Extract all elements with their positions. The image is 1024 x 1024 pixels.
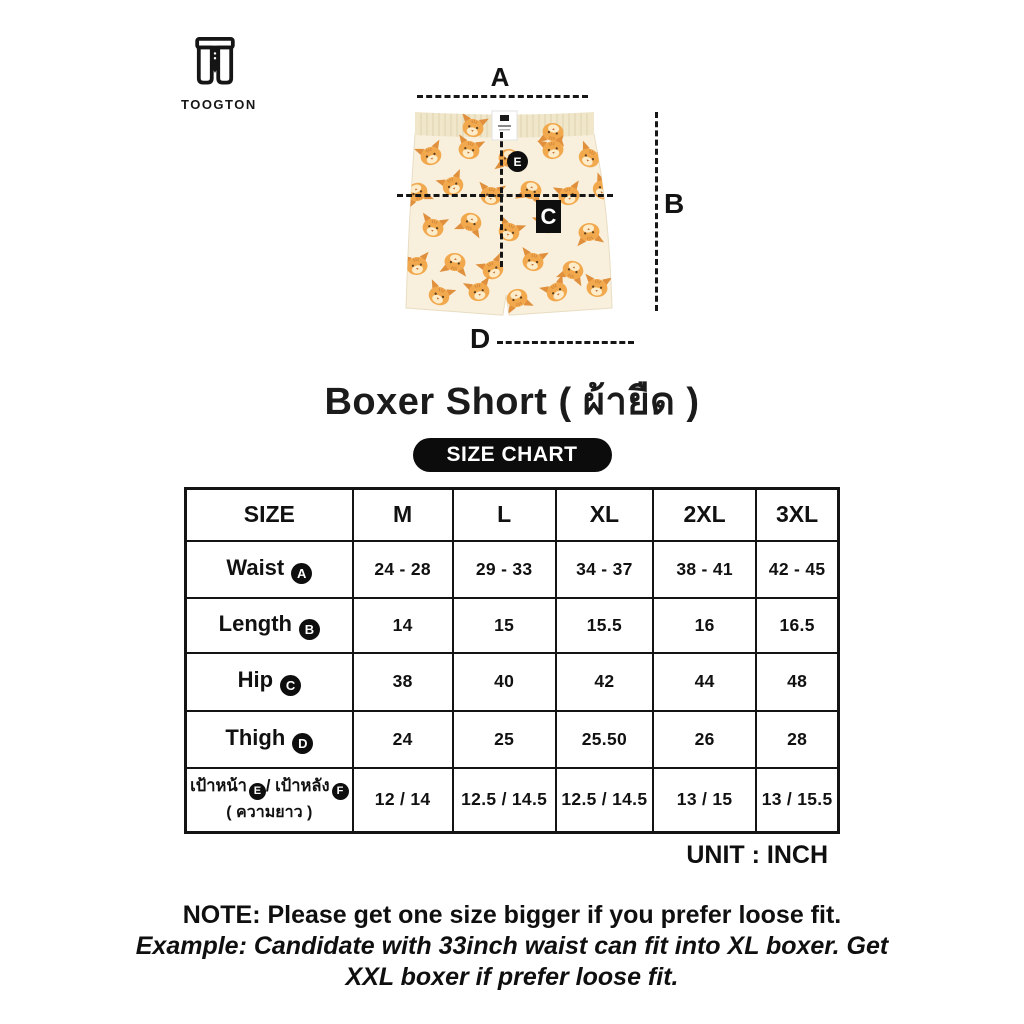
- table-row-thigh: ThighD 24 25 25.50 26 28: [186, 711, 839, 768]
- table-cell: 38 - 41: [653, 541, 756, 598]
- letter-badge-b: B: [299, 619, 320, 640]
- note-block: NOTE: Please get one size bigger if you …: [0, 900, 1024, 993]
- letter-badge-a: A: [291, 563, 312, 584]
- table-cell: 40: [453, 653, 556, 711]
- measure-line-A: [417, 95, 588, 98]
- measure-label-C: C: [536, 200, 561, 233]
- row-label-thigh: Thigh: [225, 725, 285, 750]
- measure-line-C: [397, 194, 613, 197]
- table-cell: 26: [653, 711, 756, 768]
- table-cell: 29 - 33: [453, 541, 556, 598]
- brand-logo: TOOGTON: [181, 34, 249, 112]
- table-cell: 42 - 45: [756, 541, 838, 598]
- row-label-back: เป้าหลัง: [275, 777, 329, 795]
- table-cell: 24: [353, 711, 453, 768]
- column-header-2xl: 2XL: [653, 489, 756, 541]
- table-cell: 34 - 37: [556, 541, 653, 598]
- table-row-crotch: เป้าหน้าE/ เป้าหลังF ( ความยาว ) 12 / 14…: [186, 768, 839, 833]
- table-cell: 28: [756, 711, 838, 768]
- table-row-hip: HipC 38 40 42 44 48: [186, 653, 839, 711]
- column-header-l: L: [453, 489, 556, 541]
- table-cell: 14: [353, 598, 453, 653]
- table-cell: 16: [653, 598, 756, 653]
- row-label-separator: /: [266, 777, 271, 795]
- table-cell: 44: [653, 653, 756, 711]
- measure-line-B: [655, 112, 658, 311]
- row-label-waist: Waist: [226, 555, 284, 580]
- measure-label-A: A: [484, 62, 516, 93]
- letter-badge-f: F: [332, 783, 349, 800]
- table-cell: 24 - 28: [353, 541, 453, 598]
- table-cell: 12.5 / 14.5: [453, 768, 556, 833]
- content-stack: Boxer Short ( ผ้ายืด ) SIZE CHART SIZE M…: [0, 379, 1024, 993]
- table-cell: 16.5: [756, 598, 838, 653]
- column-header-size: SIZE: [186, 489, 353, 541]
- table-cell: 25: [453, 711, 556, 768]
- table-header-row: SIZE M L XL 2XL 3XL: [186, 489, 839, 541]
- size-table: SIZE M L XL 2XL 3XL WaistA 24 - 28 29 - …: [184, 487, 840, 834]
- product-title: Boxer Short ( ผ้ายืด ): [0, 379, 1024, 425]
- row-label-length: Length: [219, 611, 292, 636]
- size-table-wrap: SIZE M L XL 2XL 3XL WaistA 24 - 28 29 - …: [184, 487, 840, 870]
- measure-label-E: E: [507, 151, 528, 172]
- measure-label-B: B: [664, 188, 684, 220]
- waistband-tag: [492, 111, 517, 140]
- table-cell: 12 / 14: [353, 768, 453, 833]
- table-cell: 25.50: [556, 711, 653, 768]
- column-header-xl: XL: [556, 489, 653, 541]
- table-row-length: LengthB 14 15 15.5 16 16.5: [186, 598, 839, 653]
- letter-badge-d: D: [292, 733, 313, 754]
- table-cell: 15: [453, 598, 556, 653]
- letter-badge-c: C: [280, 675, 301, 696]
- boxer-shorts-icon: [188, 34, 242, 88]
- row-label-sub: ( ความยาว ): [187, 800, 352, 825]
- note-example: Example: Candidate with 33inch waist can…: [117, 931, 907, 993]
- table-cell: 13 / 15: [653, 768, 756, 833]
- letter-badge-e: E: [249, 783, 266, 800]
- unit-label: UNIT : INCH: [184, 841, 840, 870]
- measure-line-D: [497, 341, 634, 344]
- table-row-waist: WaistA 24 - 28 29 - 33 34 - 37 38 - 41 4…: [186, 541, 839, 598]
- table-cell: 48: [756, 653, 838, 711]
- boxer-shorts-illustration: [403, 104, 615, 319]
- row-label-hip: Hip: [238, 667, 273, 692]
- table-cell: 38: [353, 653, 453, 711]
- table-cell: 42: [556, 653, 653, 711]
- brand-name: TOOGTON: [181, 97, 249, 112]
- measure-label-D: D: [470, 323, 490, 355]
- measure-line-E: [500, 132, 503, 267]
- column-header-3xl: 3XL: [756, 489, 838, 541]
- column-header-m: M: [353, 489, 453, 541]
- row-label-crotch: เป้าหน้าE/ เป้าหลังF: [187, 775, 352, 800]
- table-cell: 15.5: [556, 598, 653, 653]
- row-label-front: เป้าหน้า: [190, 777, 247, 795]
- table-cell: 12.5 / 14.5: [556, 768, 653, 833]
- size-chart-page: TOOGTON: [0, 0, 1024, 1024]
- table-cell: 13 / 15.5: [756, 768, 838, 833]
- note-line: NOTE: Please get one size bigger if you …: [0, 900, 1024, 931]
- size-chart-badge: SIZE CHART: [413, 438, 612, 472]
